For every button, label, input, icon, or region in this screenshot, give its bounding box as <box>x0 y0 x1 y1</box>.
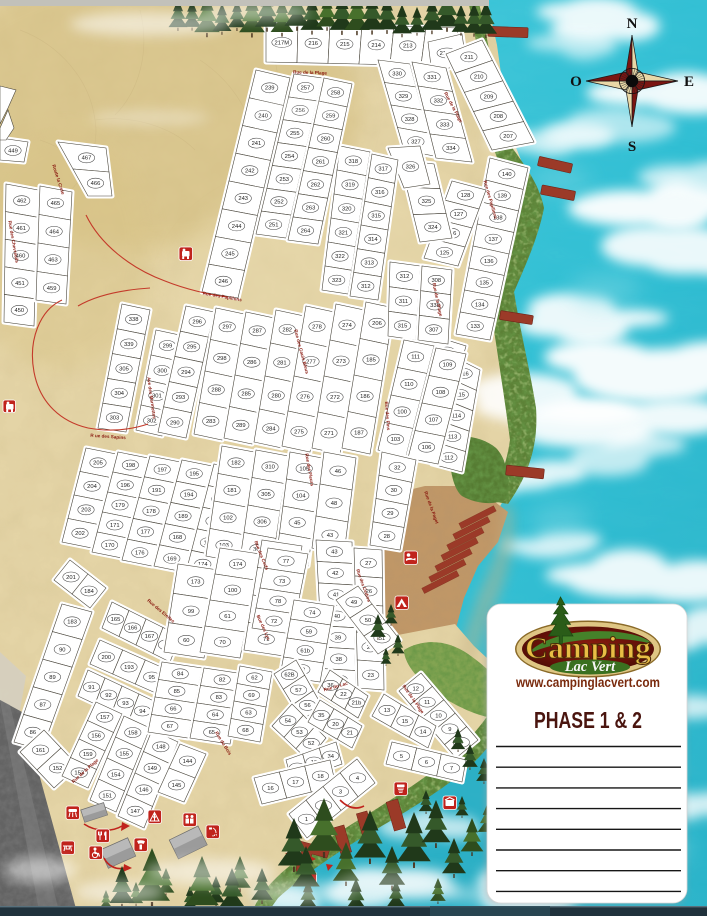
svg-text:N: N <box>627 16 638 32</box>
svg-text:114: 114 <box>452 413 462 419</box>
svg-text:262: 262 <box>311 182 321 188</box>
svg-text:78: 78 <box>275 599 281 605</box>
svg-text:5: 5 <box>400 754 403 760</box>
svg-text:271: 271 <box>324 431 334 437</box>
svg-text:154: 154 <box>111 772 121 778</box>
svg-text:181: 181 <box>227 488 237 494</box>
svg-text:242: 242 <box>245 169 255 175</box>
svg-text:92: 92 <box>105 693 111 699</box>
svg-text:244: 244 <box>232 224 242 230</box>
svg-text:243: 243 <box>238 196 248 202</box>
svg-text:12: 12 <box>412 687 418 693</box>
svg-text:6: 6 <box>425 760 428 766</box>
svg-text:185: 185 <box>366 358 376 364</box>
svg-text:466: 466 <box>91 181 101 187</box>
svg-text:127: 127 <box>454 212 464 218</box>
svg-text:273: 273 <box>336 359 346 365</box>
svg-text:61: 61 <box>224 614 230 620</box>
svg-text:307: 307 <box>429 328 439 334</box>
svg-text:187: 187 <box>354 431 364 437</box>
svg-text:16: 16 <box>267 786 273 792</box>
svg-text:83: 83 <box>216 695 222 701</box>
svg-text:323: 323 <box>332 278 342 284</box>
svg-text:296: 296 <box>192 320 202 326</box>
svg-text:146: 146 <box>139 788 149 794</box>
svg-text:151: 151 <box>102 793 112 799</box>
svg-text:304: 304 <box>114 391 124 397</box>
svg-text:133: 133 <box>470 324 480 330</box>
svg-text:9: 9 <box>448 727 451 733</box>
svg-text:305: 305 <box>119 366 129 372</box>
svg-text:284: 284 <box>266 426 276 432</box>
svg-text:72: 72 <box>271 619 277 625</box>
svg-text:54: 54 <box>285 719 292 725</box>
svg-text:156: 156 <box>91 734 101 740</box>
svg-text:45: 45 <box>294 520 300 526</box>
svg-text:264: 264 <box>301 228 311 234</box>
svg-text:E: E <box>684 74 694 90</box>
svg-text:PHASE 1 & 2: PHASE 1 & 2 <box>534 707 642 733</box>
svg-text:286: 286 <box>247 360 257 366</box>
svg-text:13: 13 <box>384 708 390 714</box>
svg-text:331: 331 <box>427 75 437 81</box>
svg-text:451: 451 <box>15 281 25 287</box>
svg-text:299: 299 <box>163 343 173 349</box>
svg-text:186: 186 <box>360 394 370 400</box>
svg-text:255: 255 <box>290 131 300 137</box>
svg-text:318: 318 <box>348 159 358 165</box>
svg-text:204: 204 <box>87 484 97 490</box>
svg-text:285: 285 <box>241 392 251 398</box>
svg-text:214: 214 <box>371 43 381 49</box>
svg-text:28: 28 <box>384 534 390 540</box>
svg-text:280: 280 <box>271 393 281 399</box>
svg-text:15: 15 <box>402 719 408 725</box>
svg-text:57: 57 <box>295 688 301 694</box>
svg-text:467: 467 <box>82 156 92 162</box>
svg-text:316: 316 <box>375 190 385 196</box>
svg-text:49: 49 <box>351 600 357 606</box>
svg-text:332: 332 <box>434 99 444 105</box>
svg-text:100: 100 <box>228 588 238 594</box>
svg-text:328: 328 <box>405 117 415 123</box>
svg-text:329: 329 <box>399 94 409 100</box>
svg-text:174: 174 <box>233 562 243 568</box>
svg-text:43: 43 <box>331 550 337 556</box>
svg-text:35: 35 <box>318 713 324 719</box>
svg-text:213: 213 <box>403 44 413 50</box>
svg-text:63: 63 <box>245 711 251 717</box>
svg-text:201: 201 <box>66 575 76 581</box>
svg-text:287: 287 <box>252 329 262 335</box>
svg-text:216: 216 <box>308 41 318 47</box>
svg-text:O: O <box>570 74 582 90</box>
svg-text:198: 198 <box>126 463 136 469</box>
svg-text:108: 108 <box>436 390 446 396</box>
svg-text:210: 210 <box>474 75 484 81</box>
svg-text:208: 208 <box>493 114 503 120</box>
svg-text:290: 290 <box>170 420 180 426</box>
svg-text:134: 134 <box>475 302 485 308</box>
svg-text:53: 53 <box>296 730 302 736</box>
svg-text:278: 278 <box>312 324 322 330</box>
svg-text:203: 203 <box>81 508 91 514</box>
svg-text:320: 320 <box>342 207 352 213</box>
svg-text:257: 257 <box>301 85 311 91</box>
svg-text:56: 56 <box>304 703 310 709</box>
svg-text:246: 246 <box>218 279 228 285</box>
svg-text:20: 20 <box>332 722 338 728</box>
svg-text:179: 179 <box>115 503 125 509</box>
svg-text:313: 313 <box>364 261 374 267</box>
svg-text:207: 207 <box>503 134 513 140</box>
svg-text:294: 294 <box>181 370 191 376</box>
svg-text:29: 29 <box>387 511 393 517</box>
svg-text:149: 149 <box>147 766 157 772</box>
svg-text:73: 73 <box>279 579 285 585</box>
svg-text:148: 148 <box>156 745 166 751</box>
svg-text:135: 135 <box>479 281 489 287</box>
svg-text:62: 62 <box>251 676 257 682</box>
svg-text:42: 42 <box>332 571 338 577</box>
svg-text:325: 325 <box>422 199 432 205</box>
svg-text:306: 306 <box>257 520 267 526</box>
svg-text:30: 30 <box>391 488 397 494</box>
svg-text:50: 50 <box>365 618 371 624</box>
svg-text:112: 112 <box>444 455 453 461</box>
svg-text:77: 77 <box>283 559 289 565</box>
svg-text:S: S <box>628 139 636 155</box>
svg-text:109: 109 <box>443 363 453 369</box>
svg-text:178: 178 <box>146 509 156 515</box>
svg-text:52: 52 <box>308 741 314 747</box>
svg-text:106: 106 <box>422 445 432 451</box>
svg-text:205: 205 <box>93 461 103 467</box>
svg-text:465: 465 <box>51 201 61 207</box>
svg-text:144: 144 <box>183 759 193 765</box>
svg-text:211: 211 <box>464 55 473 61</box>
svg-text:276: 276 <box>300 394 310 400</box>
svg-text:319: 319 <box>345 183 355 189</box>
svg-text:171: 171 <box>110 523 120 529</box>
svg-text:330: 330 <box>392 71 402 77</box>
svg-text:155: 155 <box>119 751 129 757</box>
svg-text:84: 84 <box>177 672 184 678</box>
svg-text:91: 91 <box>88 685 94 691</box>
svg-text:312: 312 <box>400 274 410 280</box>
svg-text:177: 177 <box>141 530 151 536</box>
svg-text:305: 305 <box>261 492 271 498</box>
svg-text:272: 272 <box>330 395 340 401</box>
svg-text:311: 311 <box>399 299 408 305</box>
svg-text:302: 302 <box>147 418 157 424</box>
svg-text:128: 128 <box>461 193 471 199</box>
svg-text:82: 82 <box>219 678 225 684</box>
svg-text:339: 339 <box>124 342 134 348</box>
svg-text:22: 22 <box>340 692 346 698</box>
svg-text:317: 317 <box>378 167 388 173</box>
svg-text:326: 326 <box>406 164 416 170</box>
svg-text:111: 111 <box>411 355 420 361</box>
svg-text:125: 125 <box>440 250 450 256</box>
svg-text:38: 38 <box>335 657 341 663</box>
svg-text:110: 110 <box>404 382 413 388</box>
svg-text:194: 194 <box>184 493 194 499</box>
svg-text:282: 282 <box>282 327 292 333</box>
svg-text:189: 189 <box>178 514 188 520</box>
svg-text:113: 113 <box>448 434 457 440</box>
svg-text:145: 145 <box>172 783 182 789</box>
svg-text:193: 193 <box>124 665 134 671</box>
svg-text:334: 334 <box>446 146 456 152</box>
svg-text:274: 274 <box>342 323 352 329</box>
svg-text:99: 99 <box>188 609 194 615</box>
svg-text:3: 3 <box>339 790 342 796</box>
svg-text:18: 18 <box>317 774 323 780</box>
svg-text:137: 137 <box>488 237 498 243</box>
svg-text:7: 7 <box>450 766 453 772</box>
svg-text:107: 107 <box>429 418 439 424</box>
svg-text:314: 314 <box>368 237 378 243</box>
svg-text:333: 333 <box>440 122 450 128</box>
svg-text:196: 196 <box>120 483 130 489</box>
svg-text:260: 260 <box>321 136 331 142</box>
svg-text:23: 23 <box>367 673 373 679</box>
svg-text:93: 93 <box>122 701 128 707</box>
svg-text:295: 295 <box>187 345 197 351</box>
svg-text:94: 94 <box>139 709 146 715</box>
svg-text:62B: 62B <box>284 673 294 679</box>
svg-text:87: 87 <box>39 703 45 709</box>
svg-text:281: 281 <box>277 360 287 366</box>
svg-text:195: 195 <box>189 472 199 478</box>
svg-text:263: 263 <box>306 205 316 211</box>
svg-text:245: 245 <box>225 252 235 258</box>
svg-text:322: 322 <box>335 254 345 260</box>
svg-text:158: 158 <box>128 730 138 736</box>
svg-text:241: 241 <box>252 141 262 147</box>
svg-text:95: 95 <box>148 675 154 681</box>
svg-text:89: 89 <box>49 675 55 681</box>
svg-text:Lac Vert: Lac Vert <box>564 659 616 675</box>
svg-text:90: 90 <box>59 647 65 653</box>
svg-text:166: 166 <box>128 626 138 632</box>
svg-text:17: 17 <box>292 780 298 786</box>
svg-text:300: 300 <box>157 368 167 374</box>
svg-text:1: 1 <box>305 817 308 823</box>
svg-text:461: 461 <box>16 226 26 232</box>
svg-text:39: 39 <box>335 635 341 641</box>
svg-text:www.campinglacvert.com: www.campinglacvert.com <box>515 675 660 690</box>
svg-text:254: 254 <box>285 154 295 160</box>
svg-text:209: 209 <box>484 94 494 100</box>
svg-text:283: 283 <box>206 419 216 425</box>
svg-text:157: 157 <box>100 715 110 721</box>
svg-text:69: 69 <box>248 693 254 699</box>
svg-text:200: 200 <box>101 655 111 661</box>
svg-text:168: 168 <box>173 535 183 541</box>
svg-text:61b: 61b <box>300 648 310 654</box>
svg-text:449: 449 <box>8 148 18 154</box>
svg-text:464: 464 <box>49 229 59 235</box>
svg-text:176: 176 <box>135 551 145 557</box>
svg-text:259: 259 <box>326 113 336 119</box>
svg-text:68: 68 <box>242 728 248 734</box>
svg-text:197: 197 <box>157 467 167 473</box>
svg-text:321: 321 <box>338 230 348 236</box>
svg-text:70: 70 <box>219 640 225 646</box>
svg-text:85: 85 <box>174 689 180 695</box>
svg-text:159: 159 <box>83 752 93 758</box>
svg-text:315: 315 <box>398 324 408 330</box>
svg-text:173: 173 <box>191 580 201 586</box>
svg-text:32: 32 <box>394 465 400 471</box>
svg-text:14: 14 <box>420 730 427 736</box>
svg-text:183: 183 <box>67 620 77 626</box>
svg-text:261: 261 <box>316 159 326 165</box>
svg-text:10: 10 <box>435 713 441 719</box>
svg-text:161: 161 <box>36 748 46 754</box>
svg-text:463: 463 <box>48 258 58 264</box>
svg-text:46: 46 <box>335 469 341 475</box>
svg-text:312: 312 <box>361 284 371 290</box>
svg-text:139: 139 <box>497 194 507 200</box>
svg-text:217M: 217M <box>275 40 290 46</box>
svg-text:239: 239 <box>265 86 275 92</box>
svg-text:100: 100 <box>397 410 407 416</box>
svg-text:165: 165 <box>111 617 121 623</box>
svg-text:67: 67 <box>167 724 173 730</box>
svg-text:288: 288 <box>211 388 221 394</box>
svg-text:64: 64 <box>212 713 219 719</box>
svg-text:315: 315 <box>371 214 381 220</box>
svg-text:215: 215 <box>340 42 350 48</box>
svg-text:252: 252 <box>274 200 284 206</box>
svg-text:43: 43 <box>327 533 333 539</box>
svg-text:459: 459 <box>47 286 57 292</box>
svg-text:59: 59 <box>306 629 312 635</box>
svg-text:191: 191 <box>152 488 162 494</box>
svg-text:60: 60 <box>183 638 189 644</box>
svg-text:66: 66 <box>170 707 176 713</box>
svg-text:253: 253 <box>279 177 289 183</box>
svg-text:169: 169 <box>167 556 177 562</box>
svg-text:27: 27 <box>365 561 371 567</box>
svg-text:240: 240 <box>258 113 268 119</box>
svg-text:182: 182 <box>231 461 241 467</box>
svg-text:297: 297 <box>222 325 232 331</box>
svg-text:450: 450 <box>14 308 24 314</box>
svg-text:462: 462 <box>17 199 27 205</box>
svg-text:140: 140 <box>502 172 512 178</box>
svg-text:258: 258 <box>331 90 341 96</box>
svg-text:104: 104 <box>296 493 306 499</box>
svg-text:275: 275 <box>294 429 304 435</box>
svg-text:103: 103 <box>391 437 401 443</box>
svg-text:303: 303 <box>110 416 120 422</box>
svg-text:324: 324 <box>428 225 438 231</box>
svg-text:202: 202 <box>75 531 85 537</box>
svg-text:74: 74 <box>309 610 316 616</box>
svg-text:136: 136 <box>484 259 494 265</box>
svg-text:298: 298 <box>217 356 227 362</box>
svg-text:167: 167 <box>145 634 155 640</box>
svg-text:147: 147 <box>130 809 140 815</box>
svg-text:184: 184 <box>84 589 94 595</box>
svg-text:338: 338 <box>129 317 139 323</box>
svg-text:48: 48 <box>331 501 337 507</box>
svg-text:21b: 21b <box>352 701 362 707</box>
svg-text:310: 310 <box>265 465 275 471</box>
svg-text:251: 251 <box>269 223 279 229</box>
svg-text:21: 21 <box>347 731 353 737</box>
svg-text:102: 102 <box>223 516 233 522</box>
svg-text:170: 170 <box>105 543 115 549</box>
svg-text:206: 206 <box>372 321 382 327</box>
svg-text:289: 289 <box>236 423 246 429</box>
svg-text:11: 11 <box>424 700 430 706</box>
svg-text:293: 293 <box>176 395 186 401</box>
svg-text:152: 152 <box>53 766 63 772</box>
